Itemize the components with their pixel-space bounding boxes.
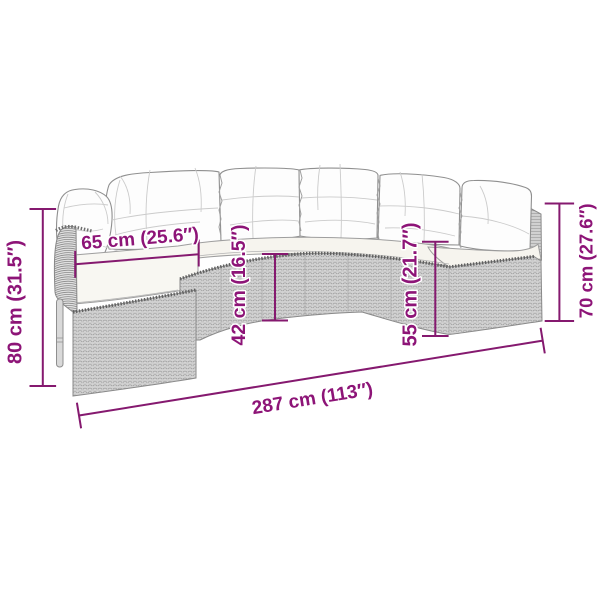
svg-text:55 cm (21.7″): 55 cm (21.7″) — [399, 222, 421, 346]
svg-text:80 cm (31.5″): 80 cm (31.5″) — [5, 240, 27, 364]
svg-text:70 cm (27.6″): 70 cm (27.6″) — [575, 203, 596, 318]
svg-text:42 cm (16.5″): 42 cm (16.5″) — [228, 225, 250, 346]
